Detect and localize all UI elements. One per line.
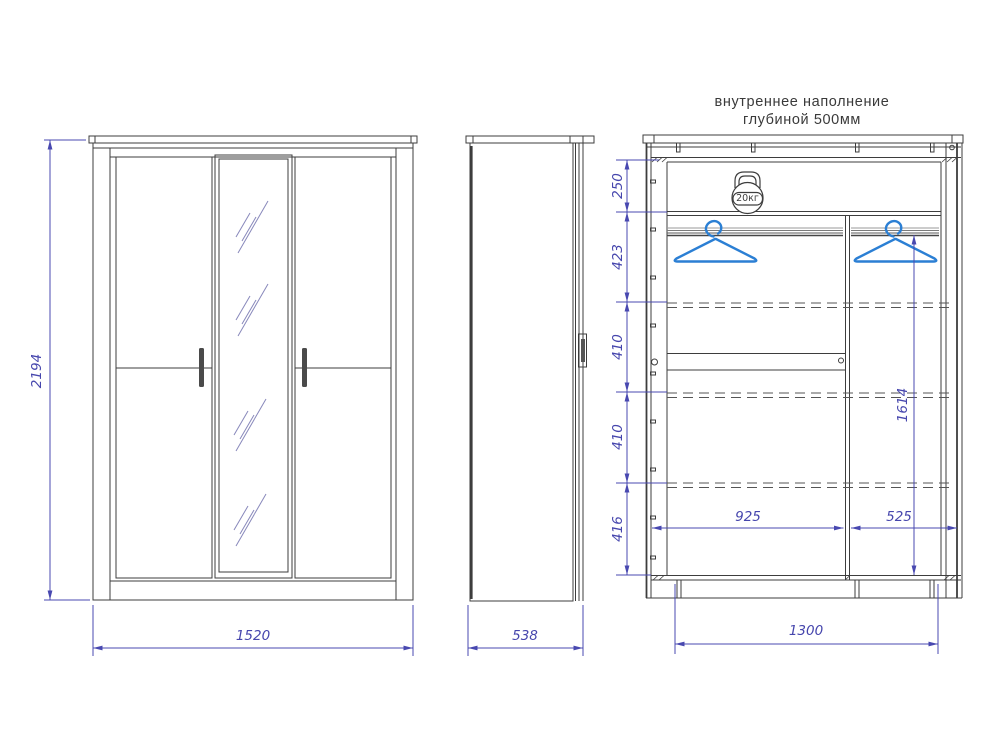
right-door-handle [302, 348, 307, 387]
hangers [675, 221, 937, 261]
bottom-panel [651, 576, 961, 581]
dashed-shelves [667, 303, 955, 488]
left-compartment-width-label: 925 [698, 508, 798, 526]
side-view [466, 136, 594, 601]
top-shelf [667, 212, 941, 216]
depth-dimension-label: 538 [475, 627, 575, 645]
max-load-label: 20кг [727, 193, 768, 205]
section-dimension-label-250: 250 [610, 156, 626, 216]
hanger-icon [855, 221, 937, 261]
base-width-dimension-label: 1300 [756, 622, 856, 640]
side-cornice [466, 136, 594, 143]
internal-view [643, 135, 963, 598]
hanger-icon [675, 221, 757, 261]
internal-cornice [643, 135, 963, 143]
drawing-title-line-2: глубиной 500мм [652, 112, 952, 128]
section-dimension-label-423: 423 [610, 227, 626, 287]
width-dimension-label: 1520 [203, 627, 303, 645]
left-door-handle [199, 348, 204, 387]
top-cornice [89, 136, 417, 143]
side-body [470, 143, 573, 601]
right-compartment-width-label: 525 [849, 508, 949, 526]
rod-height-dimension-label: 1614 [895, 375, 911, 435]
mirror-door [215, 155, 292, 578]
base-legs [646, 580, 962, 598]
section-dimension-label-416: 416 [610, 499, 626, 559]
fixed-shelf [652, 354, 846, 371]
mirror-glass-hatching [234, 201, 268, 546]
front-view [89, 136, 417, 600]
section-dimension-label-410a: 410 [610, 317, 626, 377]
rail-end-hatching [652, 158, 957, 163]
section-dimension-label-410b: 410 [610, 407, 626, 467]
drawing-title-line-1: внутреннее наполнение [652, 94, 952, 110]
wardrobe-technical-drawing: внутреннее наполнение глубиной 500мм 219… [0, 0, 1000, 750]
height-dimension-label: 2194 [29, 341, 45, 401]
front-body [93, 143, 413, 600]
